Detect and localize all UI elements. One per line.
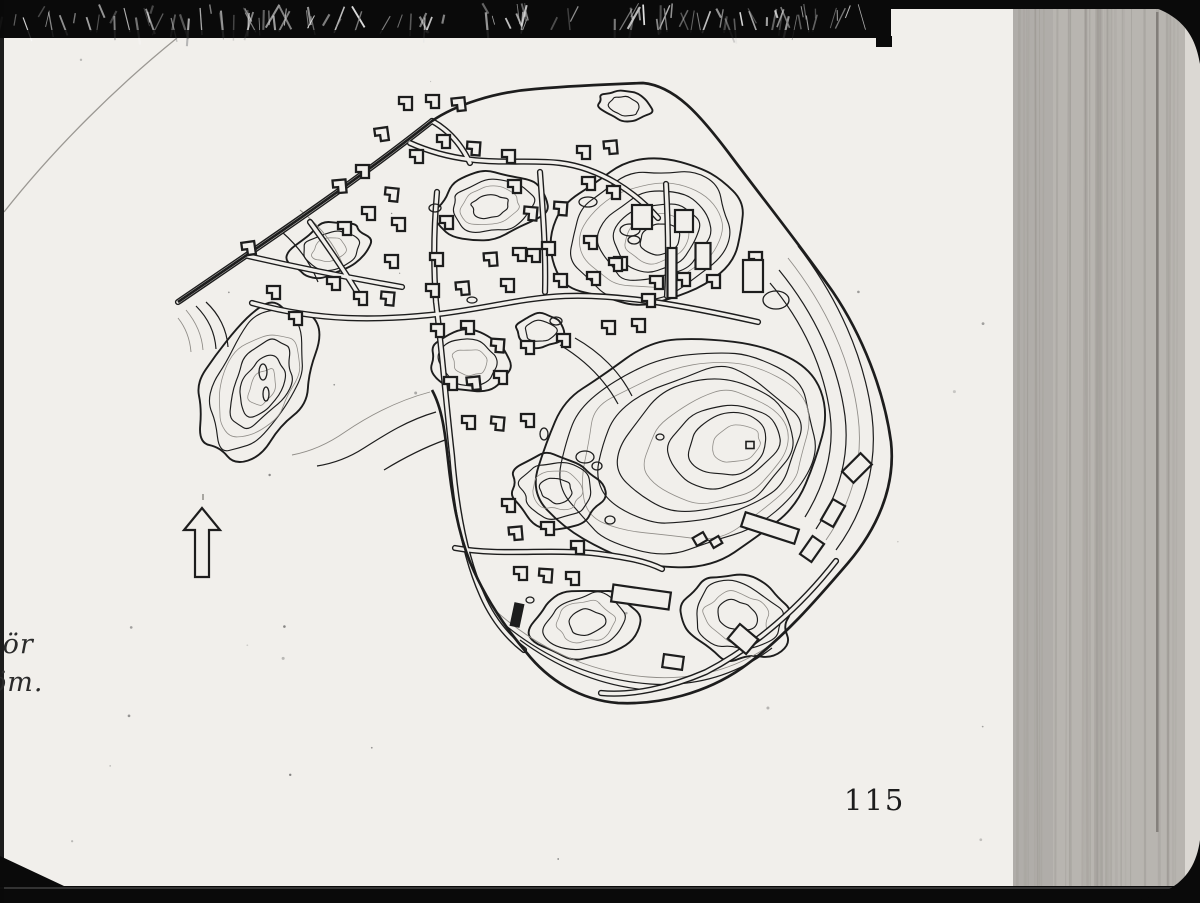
book-page xyxy=(0,9,1013,886)
site-plan-svg xyxy=(0,0,1200,903)
caption-fragment: iör xyxy=(0,629,34,660)
page-number: 115 xyxy=(844,783,905,817)
caption-fragment: öm. xyxy=(0,667,43,698)
right-book-edge xyxy=(1013,9,1200,886)
photographed-book-page: iör öm. 115 xyxy=(0,0,1200,903)
